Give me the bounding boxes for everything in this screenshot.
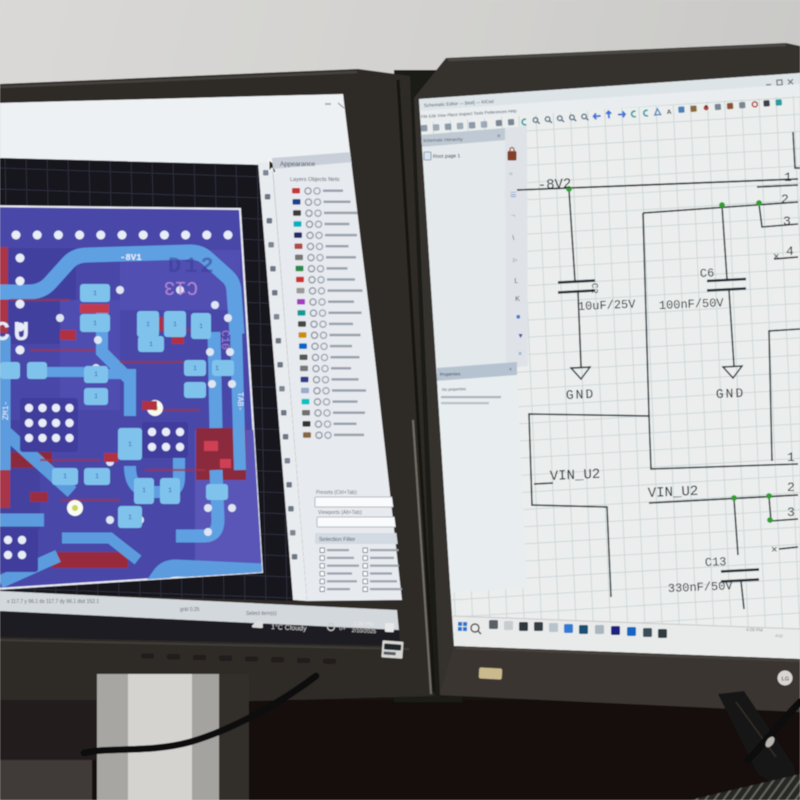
svg-text:Properties: Properties: [440, 371, 461, 377]
svg-text:100nF/50V: 100nF/50V: [659, 296, 725, 313]
svg-text:☰: ☰: [510, 192, 516, 199]
svg-text:2: 2: [781, 192, 789, 207]
svg-text:1: 1: [93, 320, 97, 327]
svg-text:C6: C6: [700, 266, 715, 281]
svg-text:ZM1-: ZM1-: [2, 401, 11, 420]
svg-text:4: 4: [786, 244, 794, 259]
svg-text:grid 0.25: grid 0.25: [180, 607, 200, 613]
svg-text:4:09 PM: 4:09 PM: [746, 627, 763, 633]
svg-text:GND: GND: [566, 387, 596, 403]
svg-text:1: 1: [93, 290, 97, 297]
svg-text:1: 1: [173, 321, 177, 328]
svg-text:GND: GND: [716, 386, 746, 402]
svg-text:1: 1: [168, 487, 172, 494]
svg-text:C13: C13: [705, 555, 727, 570]
svg-text:1: 1: [215, 365, 219, 372]
svg-text:4/10: 4/10: [775, 633, 784, 638]
svg-text:Appearance: Appearance: [280, 161, 315, 168]
svg-text:1: 1: [146, 321, 150, 328]
svg-text:3: 3: [787, 505, 795, 520]
svg-text:VIN_U2: VIN_U2: [648, 484, 699, 502]
svg-text:10uF/25V: 10uF/25V: [578, 297, 637, 314]
svg-text:A: A: [667, 109, 672, 116]
svg-text:D12: D12: [168, 254, 217, 279]
svg-text:\: \: [512, 235, 514, 242]
svg-text:K: K: [515, 296, 520, 303]
svg-text:Layers Objects Nets: Layers Objects Nets: [290, 177, 340, 183]
svg-text:Select item(s): Select item(s): [246, 611, 277, 617]
svg-text:1: 1: [193, 365, 197, 372]
svg-text:LG: LG: [782, 677, 790, 683]
svg-text:¬: ¬: [511, 213, 515, 220]
svg-text:≈: ≈: [509, 171, 513, 178]
svg-text:CU: CU: [0, 319, 32, 349]
svg-text:330nF/50V: 330nF/50V: [668, 579, 734, 596]
svg-text:TAB-: TAB-: [235, 392, 244, 411]
svg-text:2/10/2025: 2/10/2025: [352, 628, 377, 635]
svg-text:1: 1: [787, 450, 795, 465]
svg-text:1: 1: [199, 323, 203, 330]
svg-text:-8V1: -8V1: [120, 253, 142, 263]
svg-text:1: 1: [784, 170, 792, 185]
svg-text:1: 1: [142, 487, 146, 494]
svg-text:x 117.7 y 96.1 dx 117.7 dy: x 117.7 y 96.1 dx 117.7 dy 96.1 dist 152…: [7, 599, 99, 605]
svg-text:▼: ▼: [517, 333, 524, 340]
svg-text:1: 1: [128, 441, 132, 448]
svg-text:Viewports (Alt+Tab):: Viewports (Alt+Tab):: [318, 510, 363, 516]
svg-text:1: 1: [94, 393, 98, 400]
svg-text:1:06 PM: 1:06 PM: [353, 621, 374, 628]
svg-text:1: 1: [95, 473, 99, 480]
svg-text:3: 3: [783, 214, 791, 229]
svg-text:-8V2: -8V2: [538, 177, 572, 194]
svg-text:1: 1: [63, 473, 67, 480]
svg-text:1: 1: [94, 371, 98, 378]
svg-text:×: ×: [497, 134, 501, 140]
svg-text:Presets (Ctrl+Tab):: Presets (Ctrl+Tab):: [316, 490, 358, 496]
svg-text:Root page 1: Root page 1: [433, 153, 461, 160]
svg-text:C10: C10: [218, 330, 230, 350]
svg-text:No properties: No properties: [442, 386, 466, 392]
svg-text:L: L: [514, 278, 518, 285]
svg-text:C13: C13: [164, 276, 198, 298]
svg-text:VIN_U2: VIN_U2: [550, 467, 601, 485]
svg-text:1: 1: [149, 341, 153, 348]
svg-text:Selection Filter: Selection Filter: [319, 537, 356, 543]
svg-text:0+: 0+: [339, 626, 347, 632]
svg-text:C2: C2: [589, 283, 599, 294]
svg-text:2: 2: [787, 480, 795, 495]
svg-text:1: 1: [128, 514, 132, 521]
svg-text:×: ×: [773, 252, 780, 264]
svg-text:×: ×: [771, 545, 778, 557]
svg-text:×: ×: [509, 367, 512, 373]
svg-text:×: ×: [518, 351, 522, 358]
svg-text:■: ■: [516, 314, 520, 321]
